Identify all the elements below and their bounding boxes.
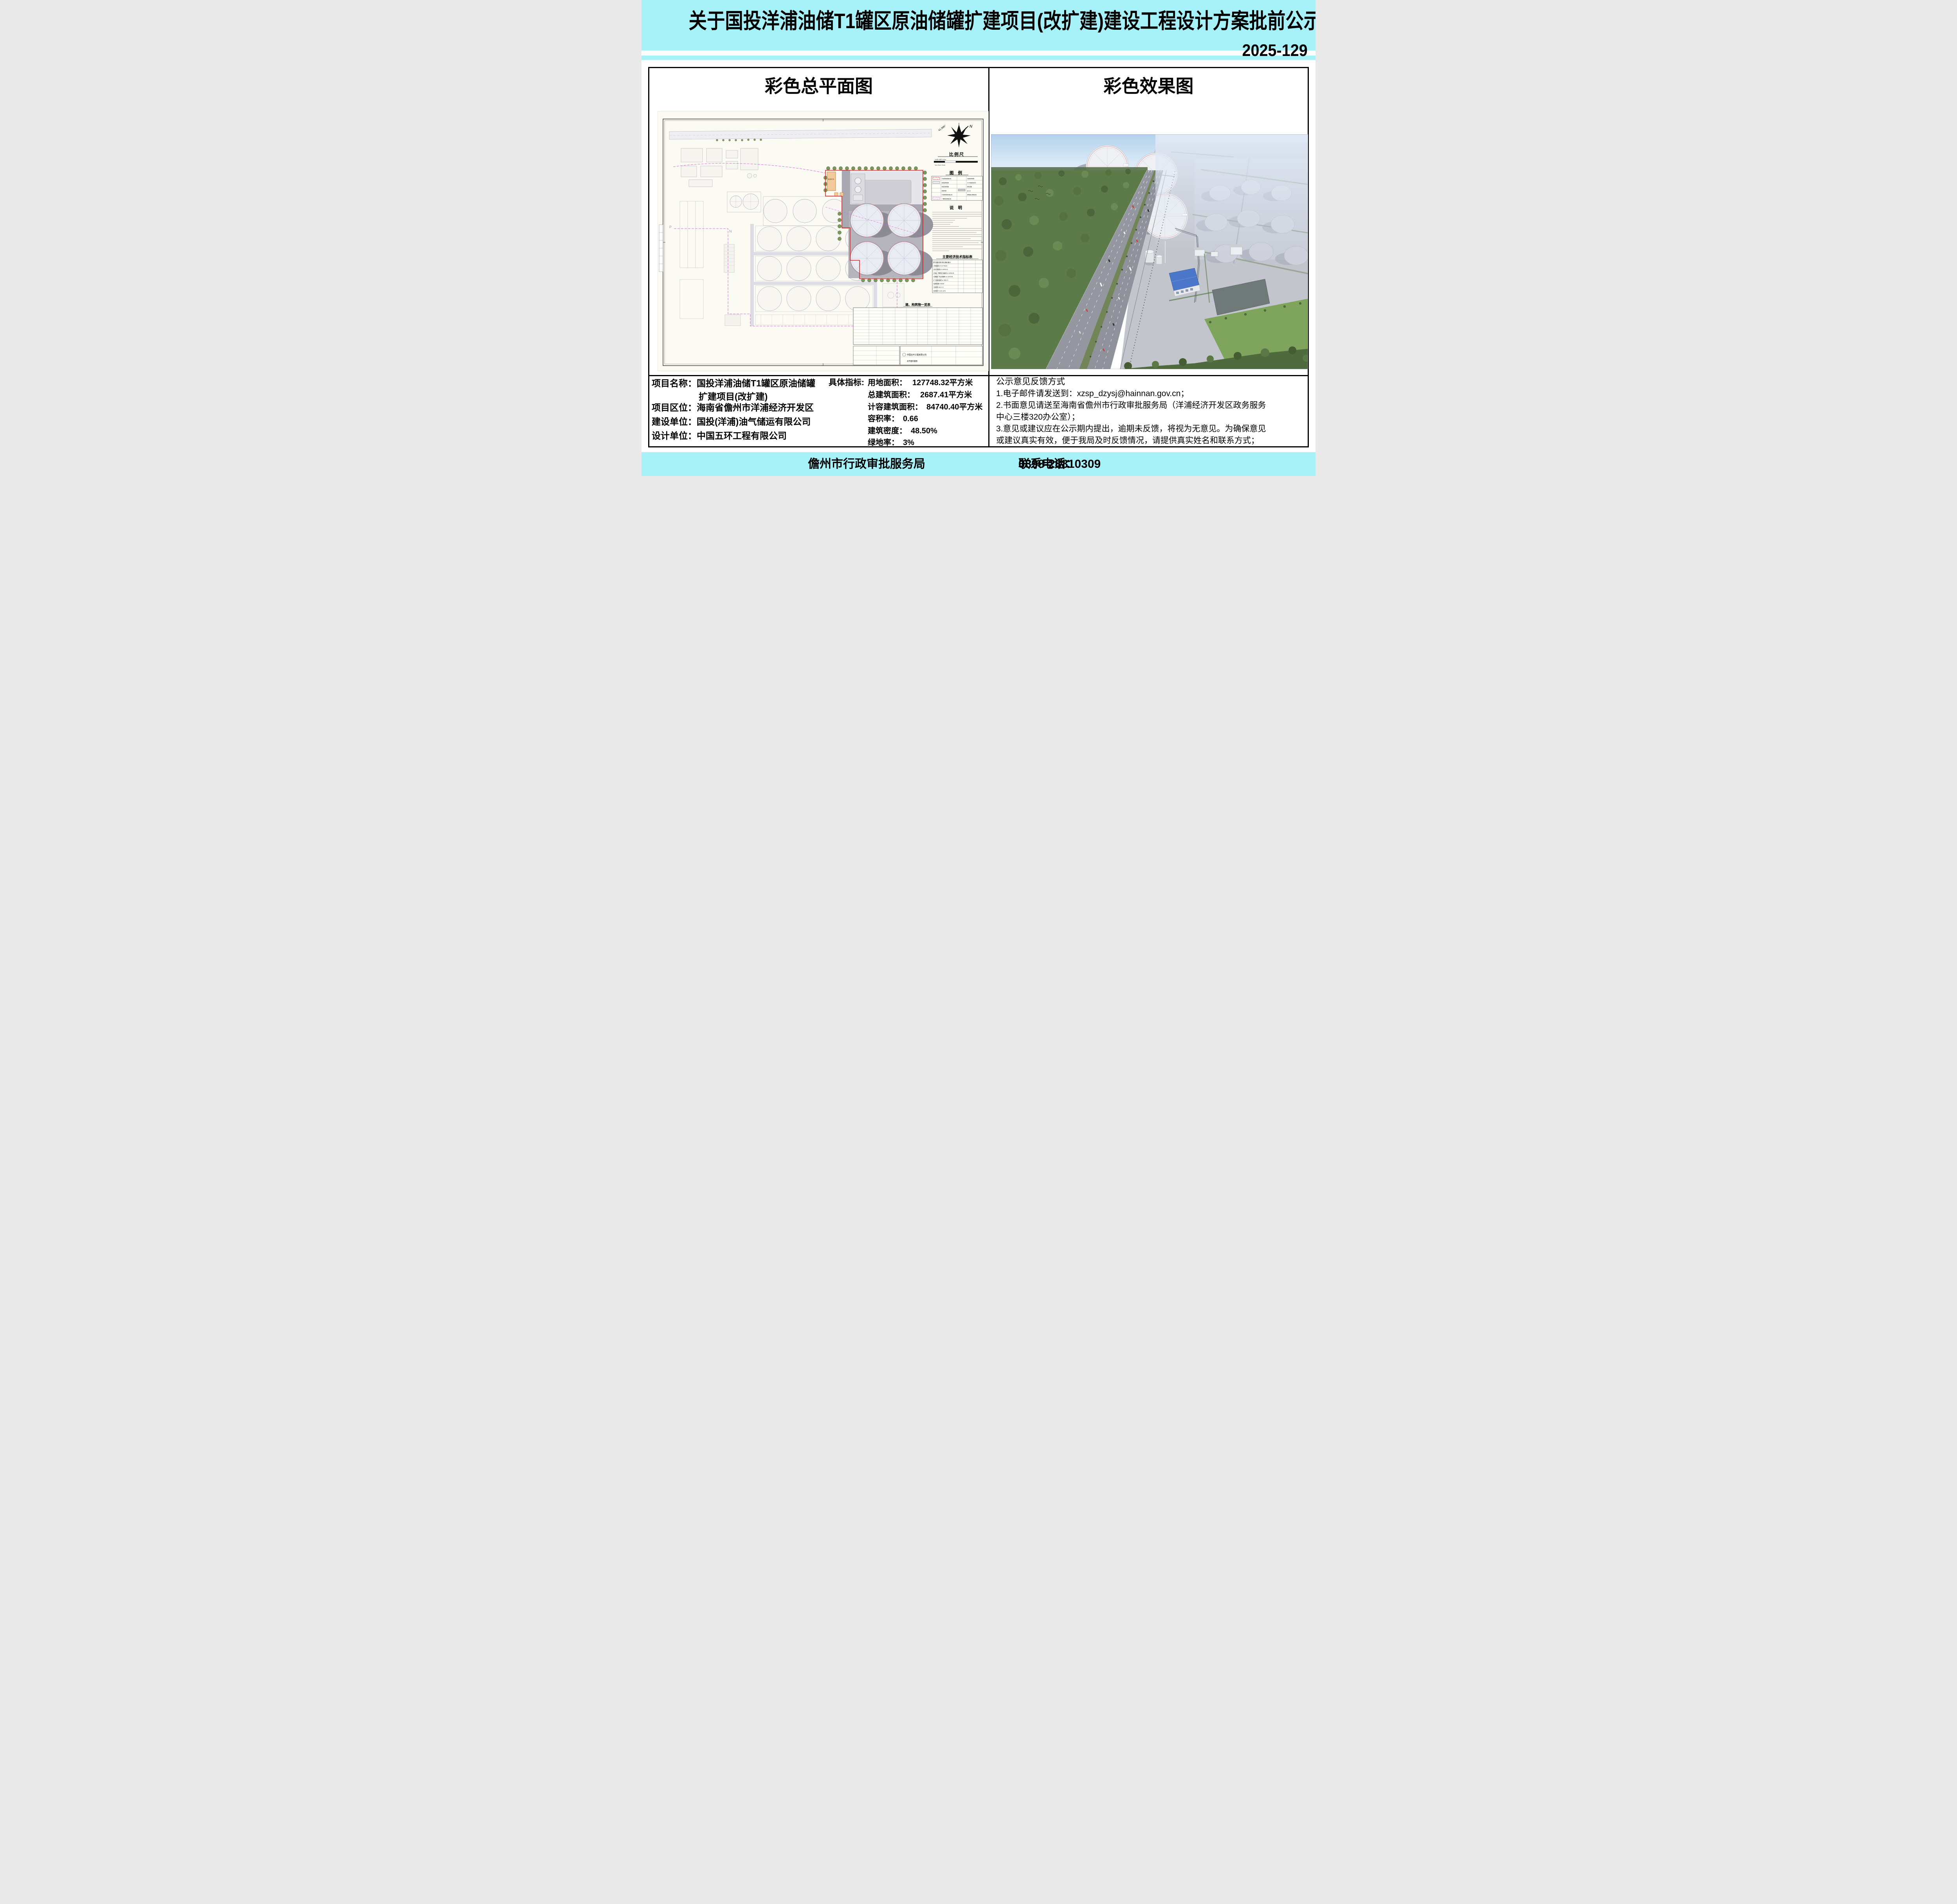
plan-scale-ticks-bottom: 1cm 5cm 10cm — [935, 164, 946, 166]
plan-scale-title: 比例尺 — [949, 151, 964, 157]
plan-scale-ticks-top: 10米 50米 100m — [935, 158, 946, 160]
plan-legend-title: 图 例 — [950, 170, 964, 175]
project-name-value: 国投洋浦油储T1罐区原油储罐 — [697, 378, 815, 388]
svg-text:新建道路: 新建道路 — [967, 186, 972, 188]
plan-building-list-title: 建、构筑物一览表 — [905, 303, 931, 307]
svg-text:8 绿地率 % 3.00 ≤15%: 8 绿地率 % 3.00 ≤15% — [933, 290, 946, 292]
svg-text:扩建项目建筑退让线: 扩建项目建筑退让线 — [942, 194, 952, 196]
svg-text:扩建项目用地红线: 扩建项目用地红线 — [942, 178, 951, 180]
svg-text:新建实体围墙: 新建实体围墙 — [942, 186, 949, 188]
banner-stripe — [642, 50, 1315, 56]
feedback-line-1: 1.电子邮件请发送到：xzsp_dzysj@hainnan.gov.cn； — [996, 387, 1189, 399]
svg-text:6 建筑系数 % 48.50: 6 建筑系数 % 48.50 — [933, 283, 944, 285]
svg-text:一期项目用地红线: 一期项目用地红线 — [942, 198, 951, 200]
svg-text:4 道路及广场占地面积 m² 21310.36: 4 道路及广场占地面积 m² 21310.36 — [933, 276, 953, 278]
plan-title-block: 中国五环工程有限公司 总平面布置图 — [853, 346, 982, 365]
metrics-label: 具体指标: — [829, 376, 864, 388]
plan-notes-title: 说 明 — [950, 205, 964, 210]
svg-text:出入口: 出入口 — [967, 189, 971, 191]
plan-corner-p: P — [669, 225, 672, 229]
svg-text:序号 指标名称 单位 数量 备注: 序号 指标名称 单位 数量 备注 — [933, 261, 951, 263]
plan-drawing-name: 总平面布置图 — [907, 360, 917, 362]
project-location-value: 海南省儋州市洋浦经济开发区 — [697, 402, 814, 413]
construction-unit-value: 国投(洋浦)油气储运有限公司 — [697, 416, 811, 427]
svg-text:新建建构筑物: 新建建构筑物 — [942, 182, 949, 184]
metric-plot-ratio: 容积率：0.66 — [868, 412, 918, 424]
svg-text:N: N — [969, 124, 973, 129]
design-unit-line: 设计单位：中国五环工程有限公司 — [652, 428, 787, 442]
plan-company: 中国五环工程有限公司 — [907, 353, 926, 356]
feedback-line-2: 2.书面意见请送至海南省儋州市行政审批服务局（洋浦经济开发区政务服务 — [996, 399, 1266, 411]
footer-agency: 儋州市行政审批服务局 — [808, 452, 925, 476]
notice-number: 2025-129 — [1242, 41, 1308, 59]
site-plan-drawing: P N — [658, 111, 989, 371]
project-name-line: 项目名称：国投洋浦油储T1罐区原油储罐 — [652, 376, 815, 389]
project-name-label: 项目名称 — [652, 378, 688, 388]
svg-text:2 总计容面积 m² 84740.40: 2 总计容面积 m² 84740.40 — [933, 269, 948, 270]
svg-text:5 厂区绿化面积 m² 3832.71: 5 厂区绿化面积 m² 3832.71 — [933, 279, 948, 281]
plan-corner-n: N — [729, 229, 732, 233]
footer-bar: 儋州市行政审批服务局 联系电话：0898-28810309 — [642, 452, 1315, 476]
feedback-line-4: 3.意见或建议应在公示期内提出，逾期未反馈，将视为无意见。为确保意见 — [996, 422, 1266, 434]
construction-unit-line: 建设单位：国投(洋浦)油气储运有限公司 — [652, 414, 811, 427]
metric-green-ratio: 绿地率：3% — [868, 436, 914, 447]
design-unit-value: 中国五环工程有限公司 — [697, 431, 787, 441]
svg-text:±0.00处绝对标高: ±0.00处绝对标高 — [967, 182, 976, 184]
metric-land-area: 用地面积：127748.32平方米 — [868, 376, 973, 388]
page-title: 关于国投洋浦油储T1罐区原油储罐扩建项目(改扩建)建设工程设计方案批前公示牌 — [689, 7, 1269, 35]
plan-indicator-table: 序号 指标名称 单位 数量 备注 1 用地面积 m² 127748.32 2 总… — [932, 260, 982, 293]
plan-building-list-table — [853, 308, 982, 344]
plan-warehouse-label: 备品备件库 — [828, 178, 834, 180]
left-panel-title: 彩色总平面图 — [649, 76, 988, 96]
svg-text:7 容积率 0.66 >0.3: 7 容积率 0.66 >0.3 — [933, 286, 944, 288]
metric-total-building-area: 总建筑面积：2687.41平方米 — [868, 388, 972, 400]
svg-text:已建建构筑物: 已建建构筑物 — [967, 178, 974, 180]
render-photo — [991, 134, 1308, 369]
feedback-title: 公示意见反馈方式 — [996, 375, 1065, 387]
svg-text:控规退让用地红线: 控规退让用地红线 — [967, 194, 977, 196]
notice-board: 关于国投洋浦油储T1罐区原油储罐扩建项目(改扩建)建设工程设计方案批前公示牌 2… — [642, 0, 1315, 476]
plan-indicator-title: 主要经济技术指标表 — [942, 255, 973, 259]
metric-building-density: 建筑密度：48.50% — [868, 424, 937, 436]
metric-countable-area: 计容建筑面积：84740.40平方米 — [868, 400, 982, 412]
feedback-line-3: 中心三楼320办公室）； — [996, 411, 1080, 422]
right-panel-title: 彩色效果图 — [989, 76, 1308, 96]
photo-haze — [1155, 134, 1308, 252]
svg-text:3 总建、构筑物占地面积 m² 61964.05: 3 总建、构筑物占地面积 m² 61964.05 — [933, 272, 954, 274]
plan-legend-box: 扩建项目用地红线 新建建构筑物 新建实体围墙 新建管廊 扩建项目建筑退让线 一期… — [932, 176, 982, 200]
svg-text:新建管廊: 新建管廊 — [942, 189, 946, 191]
feedback-line-5: 或建议真实有效，便于我局及时反馈情况，请提供真实姓名和联系方式； — [996, 434, 1259, 446]
project-location-line: 项目区位：海南省儋州市洋浦经济开发区 — [652, 400, 814, 413]
svg-text:1 用地面积 m² 127748.32: 1 用地面积 m² 127748.32 — [933, 265, 947, 267]
